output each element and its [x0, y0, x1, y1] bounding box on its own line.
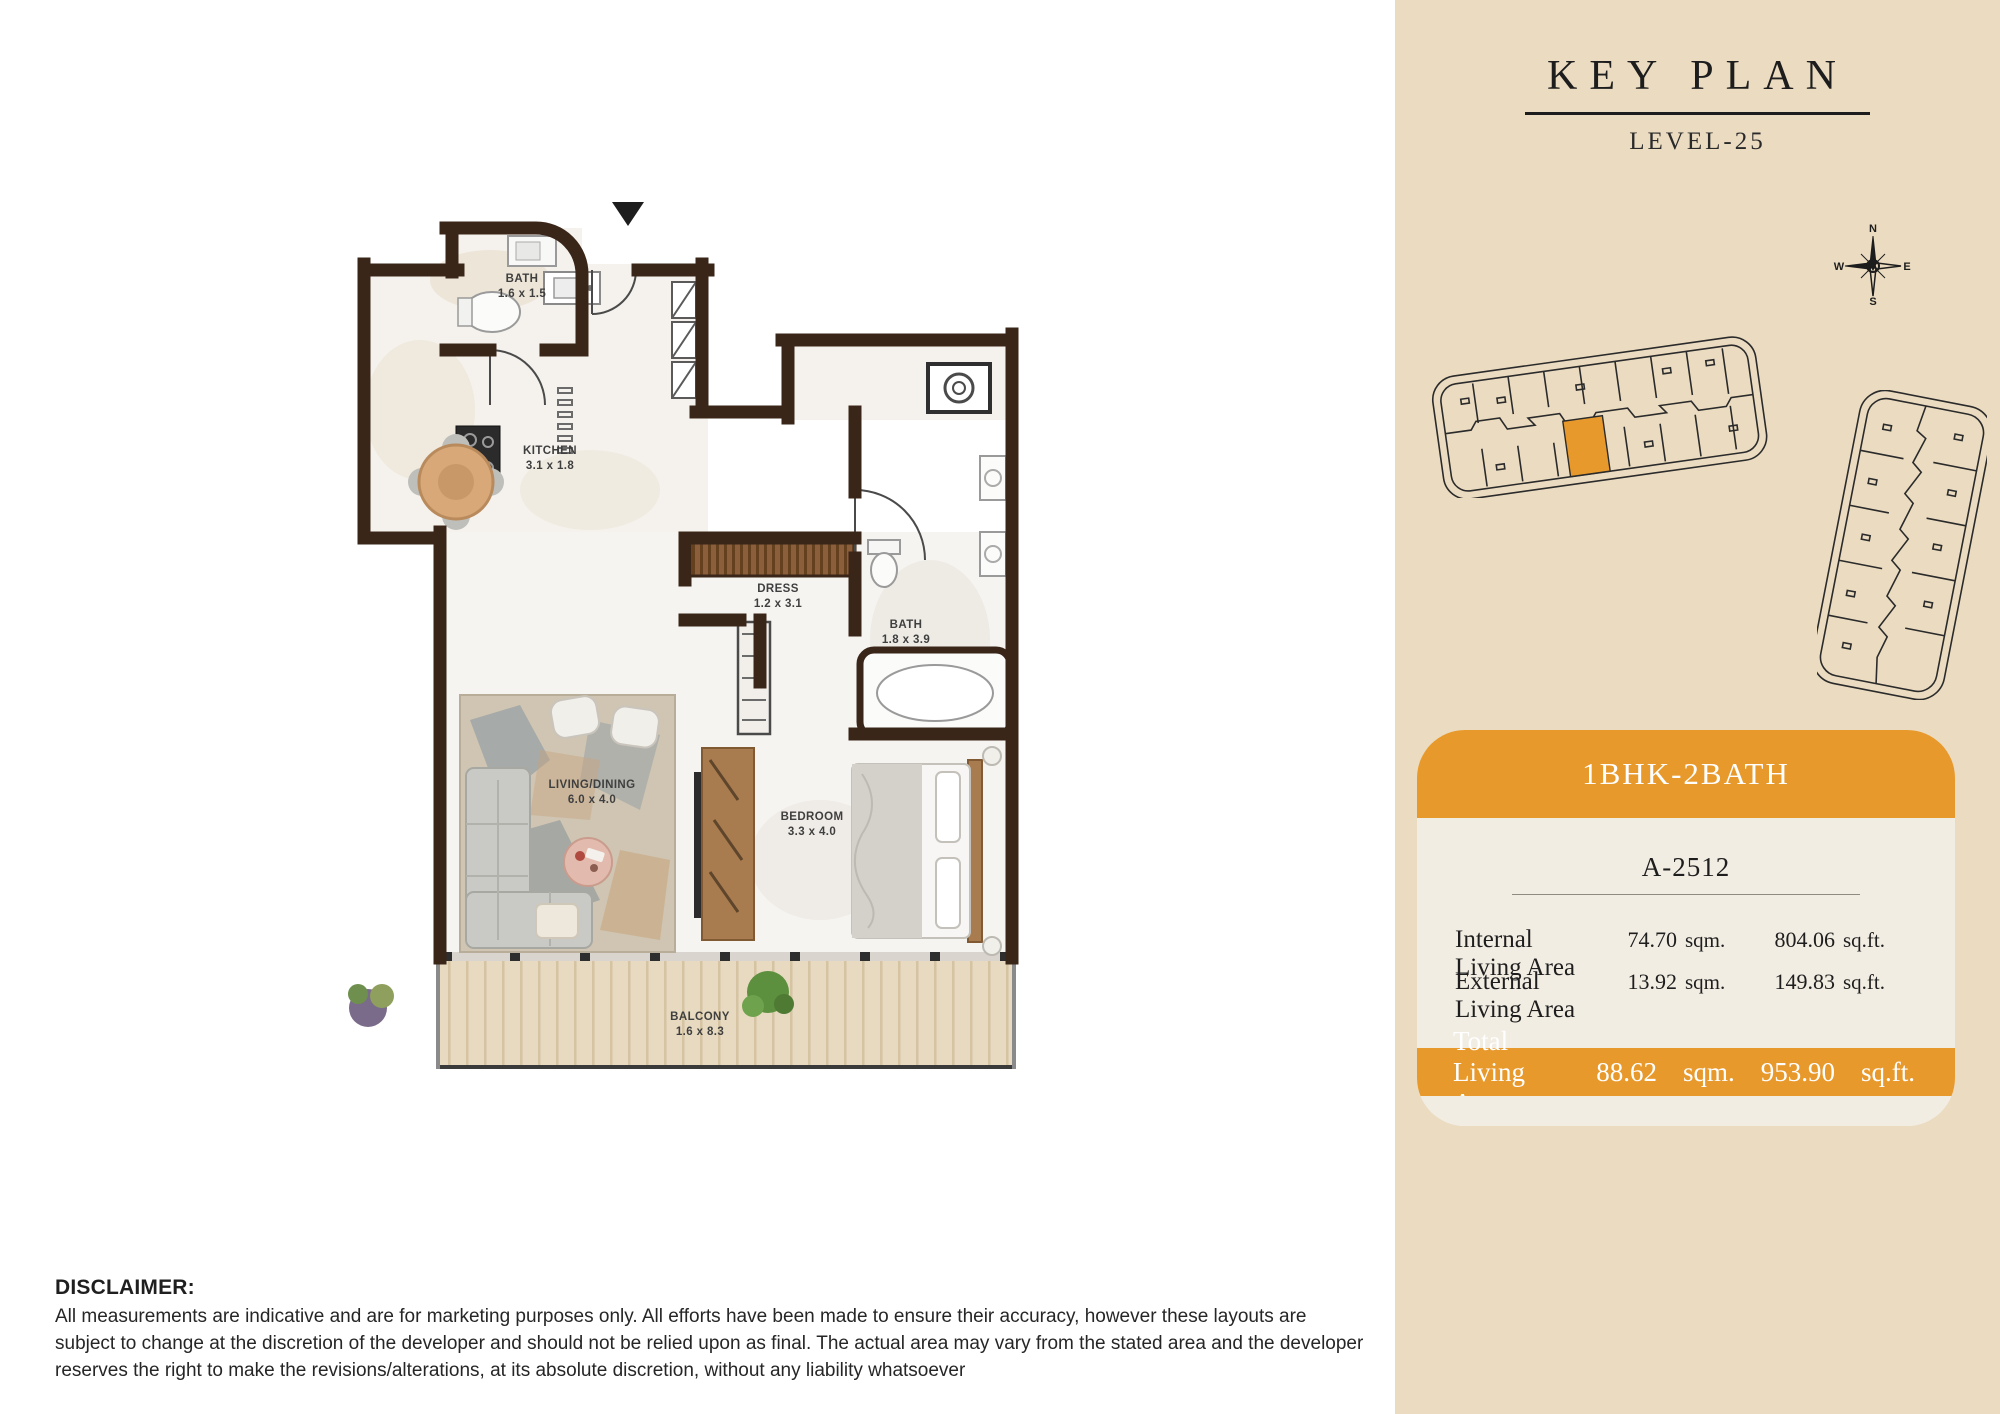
floor-plan: BATH 1.6 x 1.5 KITCHEN 3.1 x 1.8 DRESS 1…: [340, 160, 1020, 1080]
keyplan-title: KEY PLAN: [1395, 52, 2000, 115]
label-dress: DRESS: [757, 583, 799, 595]
unit-card-body: A-2512 Internal Living Area 74.70 sqm. 8…: [1417, 818, 1955, 1048]
highlighted-unit: [1563, 416, 1610, 477]
external-area-sqft: 149.83: [1743, 969, 1835, 995]
external-area-row: External Living Area 13.92 sqm. 149.83 s…: [1455, 968, 1903, 1010]
bed: [852, 747, 1001, 955]
total-area-sqm-unit: sqm.: [1683, 1057, 1735, 1088]
disclaimer-body: All measurements are indicative and are …: [55, 1304, 1365, 1385]
compass-w: W: [1834, 261, 1845, 273]
label-living: LIVING/DINING: [549, 779, 636, 791]
label-bath1-dims: 1.6 x 1.5: [498, 288, 547, 300]
unit-number: A-2512: [1417, 852, 1955, 883]
compass-n: N: [1869, 223, 1877, 235]
external-area-sqm: 13.92: [1599, 969, 1677, 995]
coffee-table: [564, 838, 612, 886]
label-bath1: BATH: [506, 273, 539, 285]
window-band: [440, 952, 1012, 961]
unit-number-underline: [1512, 894, 1860, 895]
label-bedroom: BEDROOM: [781, 811, 844, 823]
total-area-sqft-unit: sq.ft.: [1861, 1057, 1915, 1088]
label-bedroom-dims: 3.3 x 4.0: [788, 826, 836, 838]
label-balcony-dims: 1.6 x 8.3: [676, 1026, 724, 1038]
label-bath2-dims: 1.8 x 3.9: [882, 634, 930, 646]
corridor-closets: [672, 282, 696, 398]
unit-type-banner: 1BHK-2BATH: [1417, 730, 1955, 818]
label-living-dims: 6.0 x 4.0: [568, 794, 616, 806]
unit-info-card: 1BHK-2BATH A-2512 Internal Living Area 7…: [1417, 730, 1955, 1126]
internal-area-sqm-unit: sqm.: [1677, 928, 1743, 953]
tv-console: [694, 748, 754, 940]
total-area-sqft: 953.90: [1761, 1057, 1835, 1088]
compass-e: E: [1903, 261, 1910, 273]
keyplan-sidebar: KEY PLAN LEVEL-25 N E S W: [1395, 0, 2000, 1414]
keyplan-building-1: [1430, 328, 1770, 498]
disclaimer: DISCLAIMER: All measurements are indicat…: [55, 1276, 1365, 1385]
external-area-sqft-unit: sq.ft.: [1835, 970, 1903, 995]
area-rows: Internal Living Area 74.70 sqm. 804.06 s…: [1455, 926, 1903, 1010]
label-balcony: BALCONY: [670, 1011, 730, 1023]
unit-card-footer: [1417, 1096, 1955, 1126]
washer-closet: [928, 364, 990, 412]
total-area-sqm: 88.62: [1596, 1057, 1657, 1088]
label-kitchen-dims: 3.1 x 1.8: [526, 460, 575, 472]
page: BATH 1.6 x 1.5 KITCHEN 3.1 x 1.8 DRESS 1…: [0, 0, 2000, 1414]
internal-area-sqft: 804.06: [1743, 927, 1835, 953]
internal-area-sqm: 74.70: [1599, 927, 1677, 953]
dress-wardrobe: [685, 542, 855, 576]
external-area-label: External Living Area: [1455, 968, 1599, 1024]
label-kitchen: KITCHEN: [523, 445, 577, 457]
external-area-sqm-unit: sqm.: [1677, 970, 1743, 995]
keyplan-title-text: KEY PLAN: [1525, 52, 1870, 115]
level-label: LEVEL-25: [1395, 128, 2000, 156]
compass-s: S: [1869, 296, 1876, 306]
keyplan-building-2: [1817, 390, 1987, 700]
label-dress-dims: 1.2 x 3.1: [754, 598, 803, 610]
internal-area-sqft-unit: sq.ft.: [1835, 928, 1903, 953]
entry-arrow-icon: [612, 202, 644, 226]
label-bath2: BATH: [890, 619, 923, 631]
unit-type-label: 1BHK-2BATH: [1582, 756, 1790, 792]
total-area-bar: Total Living Area 88.62 sqm. 953.90 sq.f…: [1417, 1048, 1955, 1096]
compass-icon: N E S W: [1833, 222, 1913, 306]
disclaimer-heading: DISCLAIMER:: [55, 1276, 1365, 1300]
internal-area-row: Internal Living Area 74.70 sqm. 804.06 s…: [1455, 926, 1903, 968]
